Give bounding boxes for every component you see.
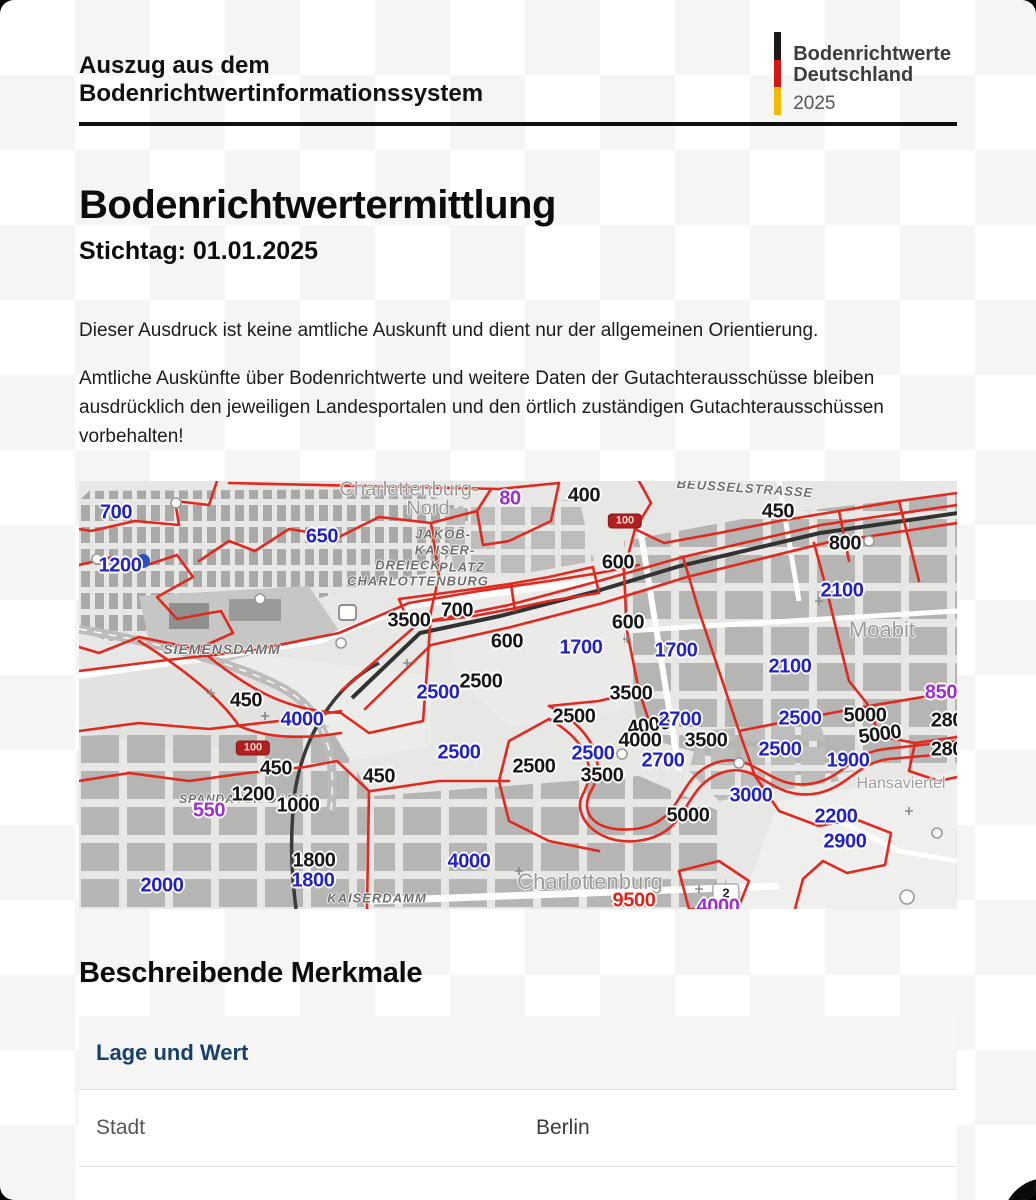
subsection-title: Lage und Wert xyxy=(96,1040,248,1066)
page-title: Auszug aus dem Bodenrichtwertinformation… xyxy=(79,52,483,108)
brw-value-label: 450 xyxy=(363,766,395,789)
brw-value-label: 2500 xyxy=(513,756,556,779)
brw-value-label: 4000 xyxy=(697,896,740,910)
brw-value-label: 800 xyxy=(829,533,861,556)
page-title-line2: Bodenrichtwertinformationssystem xyxy=(79,80,483,108)
brw-value-label: 3500 xyxy=(685,730,728,753)
row-value: Berlin xyxy=(536,1116,590,1140)
brw-value-label: 700 xyxy=(441,600,473,623)
table-row-stadt: Stadt Berlin xyxy=(79,1090,957,1167)
disclaimer-text-1: Dieser Ausdruck ist keine amtliche Ausku… xyxy=(79,316,957,345)
brw-value-label: 600 xyxy=(612,612,644,635)
brw-value-label: 2500 xyxy=(759,739,802,762)
brw-value-label: 2100 xyxy=(821,580,864,603)
brw-value-label: 3000 xyxy=(730,785,773,808)
brw-value-label: 2200 xyxy=(815,806,858,829)
logo-year: 2025 xyxy=(793,93,951,115)
brw-value-label: 650 xyxy=(306,526,338,549)
brw-value-label: 1200 xyxy=(232,784,275,807)
disclaimer-text-2: Amtliche Auskünfte über Bodenrichtwerte … xyxy=(79,364,957,451)
brw-deutschland-logo: Bodenrichtwerte Deutschland 2025 xyxy=(774,32,951,115)
subsection-lage-und-wert: Lage und Wert xyxy=(79,1016,957,1090)
brw-value-label: 2500 xyxy=(553,706,596,729)
brw-value-label: 700 xyxy=(100,502,132,525)
brw-value-label: 2000 xyxy=(141,875,184,898)
brw-value-label: 2700 xyxy=(642,750,685,773)
brw-value-label: 450 xyxy=(762,501,794,524)
brw-value-label: 9500 xyxy=(613,890,656,910)
brw-value-label: 2700 xyxy=(659,709,702,732)
brw-value-label: 5000 xyxy=(857,721,903,750)
brw-value-label: 3500 xyxy=(610,683,653,706)
brw-value-label: 3500 xyxy=(388,610,431,633)
header: Auszug aus dem Bodenrichtwertinformation… xyxy=(79,0,957,115)
brw-value-label: 1900 xyxy=(827,750,870,773)
brw-value-label: 2500 xyxy=(779,708,822,731)
brw-value-label: 1800 xyxy=(292,870,335,893)
german-flag-bar-icon xyxy=(774,32,781,115)
valuation-date: Stichtag: 01.01.2025 xyxy=(79,237,957,266)
brw-value-label: 2500 xyxy=(438,742,481,765)
brw-value-label: 1700 xyxy=(560,637,603,660)
brw-value-label: 280 xyxy=(931,710,957,733)
row-label: Stadt xyxy=(79,1116,536,1140)
brw-value-label: 280 xyxy=(931,739,957,762)
table-row-stadtteil: Stadtteil Prenzlauer Berg xyxy=(79,1167,957,1200)
logo-line2: Deutschland xyxy=(793,65,951,86)
brw-value-label: 4000 xyxy=(448,851,491,874)
brw-value-label: 2100 xyxy=(769,656,812,679)
page-title-line1: Auszug aus dem xyxy=(79,52,483,80)
section-title: Beschreibende Merkmale xyxy=(79,957,957,990)
brw-value-label: 4000 xyxy=(281,709,324,732)
brw-value-label: 1200 xyxy=(99,555,142,578)
logo-line1: Bodenrichtwerte xyxy=(793,44,951,65)
brw-value-label: 3500 xyxy=(581,765,624,788)
brw-value-label: 2900 xyxy=(824,831,867,854)
main-heading: Bodenrichtwertermittlung xyxy=(79,184,957,226)
brw-value-label: 2500 xyxy=(460,671,503,694)
header-divider xyxy=(79,122,957,126)
brw-value-label: 5000 xyxy=(667,805,710,828)
map-value-layer: 4004508006007003500600600250035004505000… xyxy=(79,481,957,909)
brw-value-label: 600 xyxy=(602,552,634,575)
brw-value-label: 1000 xyxy=(277,795,320,818)
brw-value-label: 550 xyxy=(193,800,225,823)
brw-value-label: 80 xyxy=(499,488,520,511)
brw-print-page: Auszug aus dem Bodenrichtwertinformation… xyxy=(0,0,1036,1200)
brw-value-label: 2500 xyxy=(572,743,615,766)
brw-value-label: 600 xyxy=(491,631,523,654)
brw-value-label: 450 xyxy=(260,758,292,781)
brw-value-label: 2500 xyxy=(417,682,460,705)
brw-value-label: 400 xyxy=(568,485,600,508)
brw-value-label: 1700 xyxy=(655,640,698,663)
brw-map-image: Charlottenburg-NordBEUSSELSTRASSEJAKOB-K… xyxy=(79,481,957,909)
brw-value-label: 850 xyxy=(925,682,957,705)
brw-value-label: 450 xyxy=(230,690,262,713)
